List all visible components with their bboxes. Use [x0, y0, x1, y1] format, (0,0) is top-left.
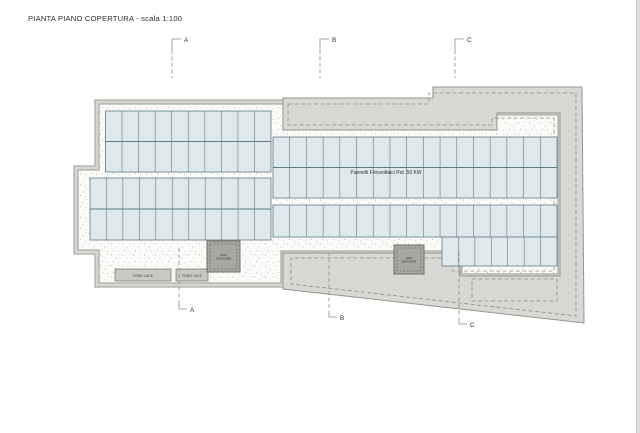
- shaft-box-1: VANO ASCENSORE: [207, 241, 240, 272]
- panel-array-3: [273, 137, 557, 198]
- page-title: PIANTA PIANO COPERTURA - scala 1:100: [28, 14, 182, 23]
- section-marker-a-top: A: [172, 37, 189, 78]
- section-tick-icon: [179, 304, 187, 309]
- section-label-c-bottom: C: [470, 322, 475, 329]
- shaft-2-label-line2: ASCENSORE: [401, 261, 416, 264]
- section-tick-icon: [455, 39, 464, 50]
- shaft-box-2: VANO ASCENSORE: [394, 245, 424, 274]
- roof-plan-svg: PIANTA PIANO COPERTURA - scala 1:100 A B…: [0, 0, 640, 433]
- section-label-a-top: A: [184, 37, 189, 44]
- skylight-1-label: FORO LUCE: [133, 274, 154, 278]
- page-edge: [637, 0, 640, 433]
- panel-array-1: [106, 111, 272, 172]
- panel-array-2: [90, 178, 271, 240]
- section-tick-icon: [172, 39, 181, 50]
- section-marker-c-top: C: [455, 37, 472, 78]
- section-tick-icon: [320, 39, 329, 50]
- section-tick-icon: [329, 312, 337, 317]
- section-label-c-top: C: [467, 37, 472, 44]
- section-label-b-top: B: [332, 37, 336, 44]
- skylight-2-label: FORO LUCE: [182, 274, 203, 278]
- section-tick-icon: [459, 319, 467, 324]
- section-marker-b-top: B: [320, 37, 336, 78]
- panels-label: Pannelli Fotovoltaici Pot. 50 KW: [350, 170, 421, 176]
- panel-array-4: [273, 205, 557, 237]
- skylight-2: FORO LUCE: [176, 269, 208, 281]
- skylight-1: FORO LUCE: [115, 269, 171, 281]
- shaft-1-label-line2: ASCENSORE: [216, 258, 231, 261]
- drawing-canvas: PIANTA PIANO COPERTURA - scala 1:100 A B…: [0, 0, 640, 433]
- section-label-b-bottom: B: [340, 315, 344, 322]
- section-label-a-bottom: A: [190, 307, 195, 314]
